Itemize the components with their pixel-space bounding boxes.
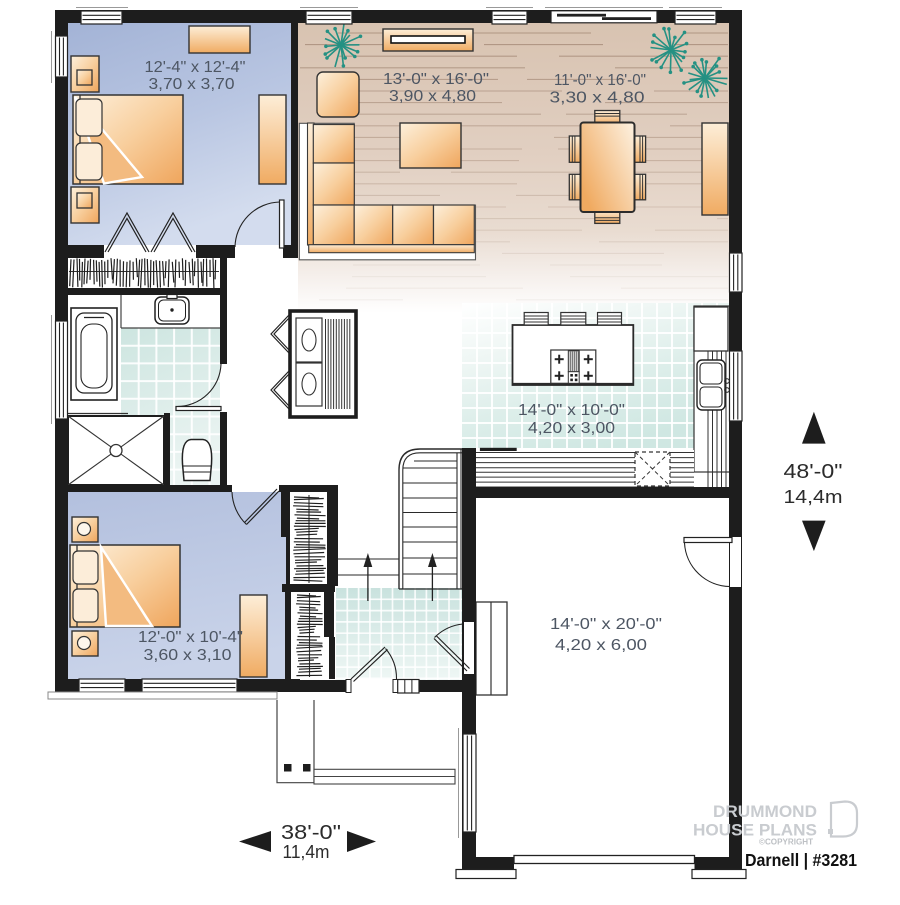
svg-text:©COPYRIGHT: ©COPYRIGHT (759, 838, 813, 847)
svg-text:14'-0" x 20'-0": 14'-0" x 20'-0" (550, 616, 662, 633)
svg-text:11'-0" x 16'-0": 11'-0" x 16'-0" (554, 72, 646, 89)
svg-text:38'-0": 38'-0" (281, 822, 341, 844)
svg-text:3,60 x 3,10: 3,60 x 3,10 (144, 647, 232, 664)
svg-text:12'-0" x 10'-4": 12'-0" x 10'-4" (138, 629, 243, 646)
svg-text:3,90 x 4,80: 3,90 x 4,80 (389, 88, 476, 105)
svg-text:DRUMMOND: DRUMMOND (713, 802, 817, 821)
svg-text:13'-0" x 16'-0": 13'-0" x 16'-0" (383, 71, 489, 88)
svg-text:12'-4" x 12'-4": 12'-4" x 12'-4" (145, 59, 246, 76)
svg-text:14'-0" x 10'-0": 14'-0" x 10'-0" (518, 402, 625, 419)
svg-text:11,4m: 11,4m (283, 842, 330, 862)
svg-text:14,4m: 14,4m (784, 487, 843, 507)
svg-text:48'-0": 48'-0" (784, 461, 843, 483)
svg-text:4,20 x 3,00: 4,20 x 3,00 (528, 420, 615, 437)
svg-text:Darnell | #3281: Darnell | #3281 (745, 850, 857, 870)
svg-text:4,20 x 6,00: 4,20 x 6,00 (555, 637, 647, 654)
svg-text:3,70 x 3,70: 3,70 x 3,70 (149, 76, 235, 93)
svg-text:3,30 x 4,80: 3,30 x 4,80 (550, 90, 645, 107)
